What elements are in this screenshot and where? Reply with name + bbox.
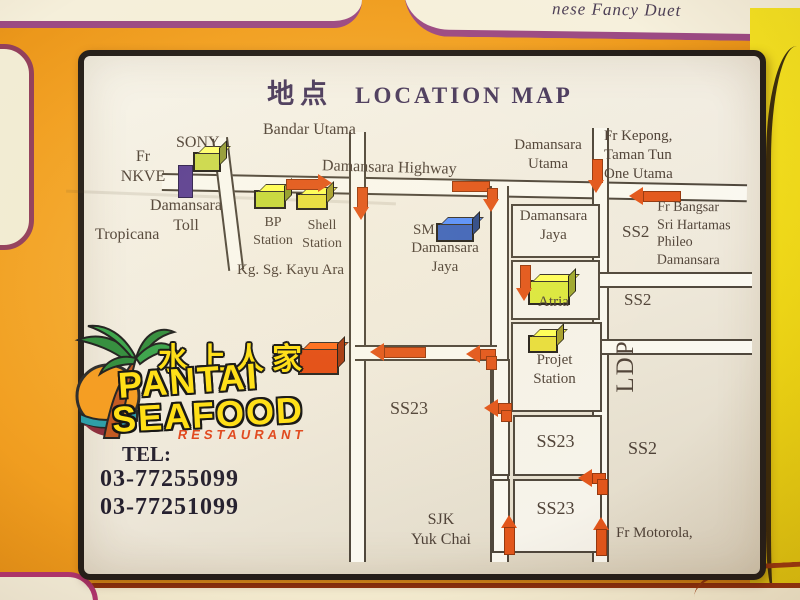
label-projet-station: Projet Station (511, 351, 598, 389)
label-damansara-jaya-block: Damansara Jaya (511, 207, 596, 245)
map-content: 地点 LOCATION MAP (0, 0, 800, 600)
label-fr-motorola: Fr Motorola, (616, 524, 693, 543)
label-bandar-utama: Bandar Utama (263, 120, 356, 140)
label-shell-station: Shell Station (290, 217, 354, 252)
label-ss2-mid: SS2 (624, 289, 651, 310)
label-sm: SM (413, 221, 435, 240)
label-atria: Atria (511, 293, 596, 312)
label-ss23-upper-block: SS23 (513, 430, 598, 453)
tel-label: TEL: (122, 442, 171, 467)
label-ss23-lower-block: SS23 (513, 497, 598, 520)
label-ss23-left: SS23 (390, 397, 428, 420)
label-ss2-top: SS2 (622, 221, 649, 242)
label-ldp: LDP (600, 328, 652, 404)
label-fr-nkve: Fr NKVE (100, 147, 186, 187)
label-damansara-utama: Damansara Utama (494, 136, 602, 174)
phone-number-2: 03-77251099 (100, 494, 239, 521)
label-damansara-highway: Damansara Highway (322, 156, 457, 180)
label-fr-bangsar: Fr Bangsar Sri Hartamas Phileo Damansara (657, 199, 731, 270)
label-ss2-bottom: SS2 (628, 437, 657, 460)
label-tropicana: Tropicana (95, 225, 159, 245)
label-sony: SONY (176, 133, 220, 153)
label-sjk-yuk-chai: SJK Yuk Chai (398, 510, 484, 550)
flyer-photo: nese Fancy Duet 地点 LOCATION MAP (0, 0, 800, 600)
logo-restaurant-text: RESTAURANT (177, 427, 308, 442)
label-kayu-ara: Kg. Sg. Kayu Ara (237, 261, 344, 280)
label-fr-kepong: Fr Kepong, Taman Tun One Utama (604, 127, 673, 183)
phone-number-1: 03-77255099 (100, 466, 239, 493)
label-sm-school: Damansara Jaya (390, 239, 500, 277)
